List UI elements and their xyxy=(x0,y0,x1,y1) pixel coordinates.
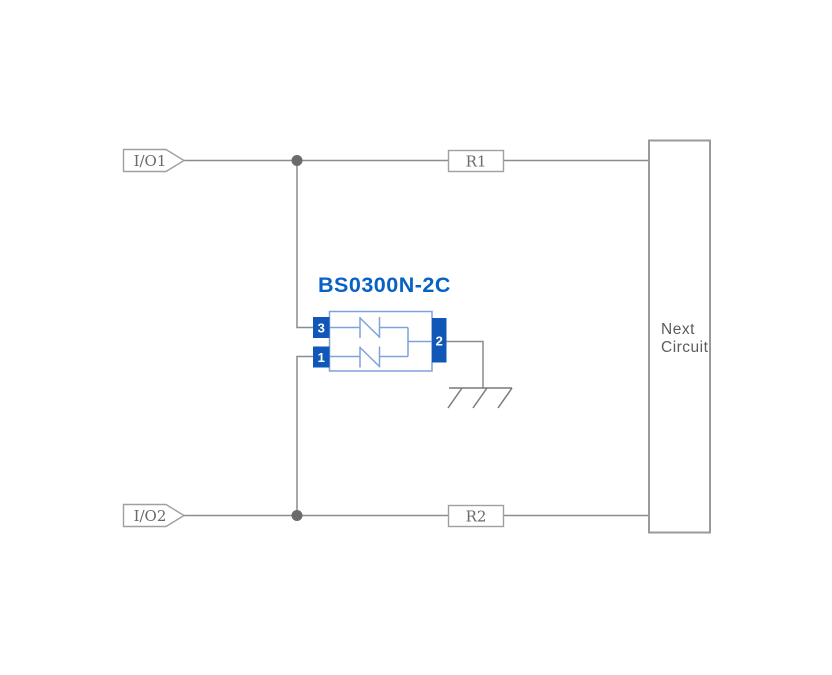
wire-junction-to-pin3 xyxy=(297,161,314,328)
r1-label: R1 xyxy=(466,153,487,171)
circuit-diagram-svg: I/O1 I/O2 R1 R2 Next Circuit BS0300N-2C xyxy=(0,0,832,675)
pin-2: 2 xyxy=(432,318,447,363)
circuit-diagram: I/O1 I/O2 R1 R2 Next Circuit BS0300N-2C xyxy=(0,0,832,675)
pin-1: 1 xyxy=(313,347,330,368)
pin-2-label: 2 xyxy=(436,334,443,349)
resistor-r1: R1 xyxy=(449,151,504,172)
next-circuit-label-line1: Next xyxy=(661,321,695,338)
pin-3: 3 xyxy=(313,317,330,338)
component-title: BS0300N-2C xyxy=(318,273,451,297)
io2-port-tag: I/O2 xyxy=(124,505,185,527)
io1-label: I/O1 xyxy=(134,152,167,170)
tvs-component: BS0300N-2C xyxy=(313,273,451,371)
io2-label: I/O2 xyxy=(134,507,167,525)
io1-port-tag: I/O1 xyxy=(124,150,185,172)
junction-dot-top xyxy=(292,155,303,166)
pin-1-label: 1 xyxy=(318,350,325,365)
wire-pin1-to-junction xyxy=(297,357,314,516)
wire-pin2-to-ground xyxy=(446,342,483,389)
pin-3-label: 3 xyxy=(318,321,325,336)
chassis-ground-icon xyxy=(448,388,512,408)
next-circuit-label-line2: Circuit xyxy=(661,339,709,356)
resistor-r2: R2 xyxy=(449,506,504,527)
junction-dot-bottom xyxy=(292,510,303,521)
next-circuit-block: Next Circuit xyxy=(649,141,710,533)
r2-label: R2 xyxy=(466,508,487,526)
